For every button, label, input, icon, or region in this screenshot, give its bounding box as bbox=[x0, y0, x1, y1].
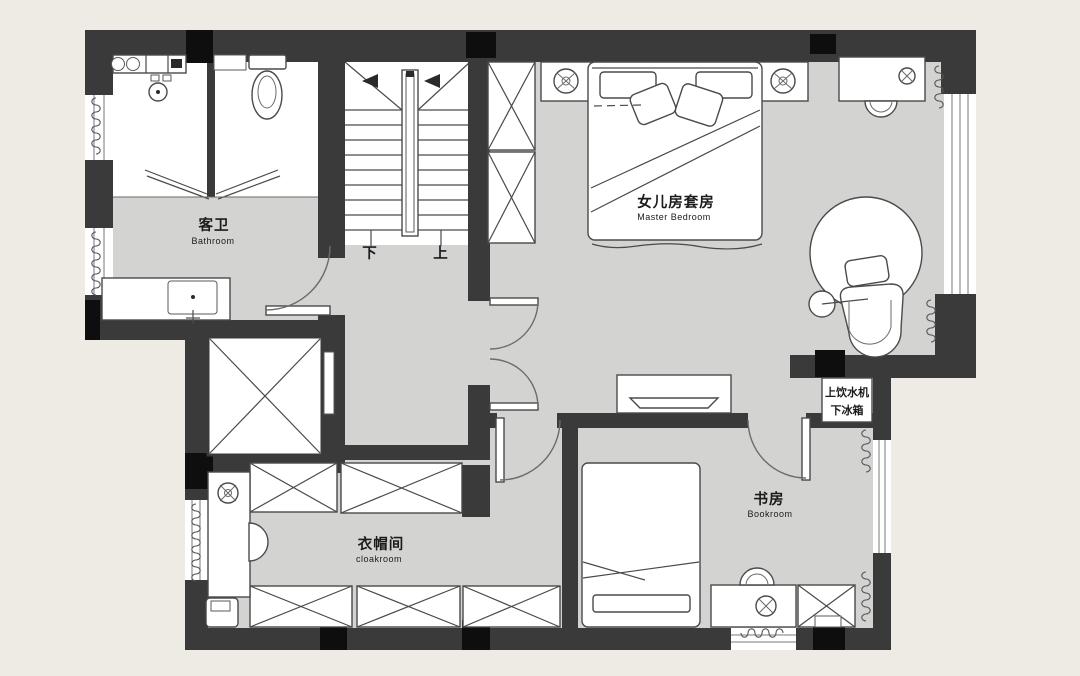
bed-icon bbox=[582, 463, 700, 627]
floor-plan-svg: 上饮水机 下冰箱 bbox=[0, 0, 1080, 676]
wall-cloak-book-divider bbox=[562, 418, 578, 637]
shower-bracket bbox=[163, 75, 171, 81]
outside-notch-right bbox=[891, 378, 1080, 655]
basin-icon bbox=[127, 58, 140, 71]
ottoman bbox=[844, 255, 890, 287]
door-leaf bbox=[802, 418, 810, 480]
wall-master-west-pillar bbox=[468, 385, 490, 460]
master-label-zh: 女儿房套房 bbox=[637, 193, 715, 211]
door-leaf bbox=[490, 403, 538, 410]
outside-notch-left bbox=[85, 337, 185, 657]
wall-corner-e-mid bbox=[935, 294, 976, 358]
wardrobe-x-icon bbox=[250, 463, 337, 512]
wall-divider-seg2 bbox=[557, 413, 748, 428]
wall-master-west bbox=[468, 30, 490, 301]
wall-corner-ne bbox=[941, 30, 976, 94]
master-label-en: Master Bedroom bbox=[637, 212, 711, 222]
wardrobe-x-icon bbox=[357, 586, 460, 627]
wall-bookroom-east-upper bbox=[873, 378, 891, 440]
bathroom-wet-zone bbox=[113, 55, 318, 197]
door-leaf bbox=[266, 306, 330, 315]
window-icon bbox=[873, 440, 891, 553]
wall-hall-south bbox=[330, 445, 490, 460]
pillar bbox=[466, 32, 496, 58]
door-leaf bbox=[496, 418, 504, 482]
shower-bracket bbox=[151, 75, 159, 81]
wall-cloakroom-stub bbox=[462, 465, 490, 517]
bookroom-label-zh: 书房 bbox=[754, 490, 785, 508]
note-water-dispenser: 上饮水机 bbox=[825, 385, 869, 399]
wardrobe-x-icon bbox=[250, 586, 352, 627]
elevator bbox=[208, 337, 334, 455]
stair-rail-cap bbox=[406, 71, 414, 77]
wardrobe-x-icon bbox=[341, 463, 462, 513]
stair-down-label: 下 bbox=[362, 245, 378, 262]
wardrobe-x-icon bbox=[488, 62, 535, 150]
window-icon bbox=[85, 95, 113, 160]
shelf bbox=[214, 55, 246, 70]
basin-icon bbox=[112, 58, 125, 71]
stair-rail-inner bbox=[406, 74, 414, 232]
bathroom-label-zh: 客卫 bbox=[198, 216, 230, 234]
bookroom-label-en: Bookroom bbox=[747, 509, 792, 519]
pillow-icon bbox=[593, 595, 690, 612]
note-fridge: 下冰箱 bbox=[831, 403, 864, 417]
outside-right bbox=[976, 30, 1080, 390]
wardrobe-x-icon bbox=[463, 586, 560, 627]
tv-icon bbox=[630, 398, 718, 408]
wardrobe-x-icon bbox=[798, 585, 855, 627]
cloakroom-label-en: cloakroom bbox=[356, 554, 402, 564]
pillar bbox=[810, 34, 836, 54]
laundry-basket-icon bbox=[206, 598, 238, 627]
toilet-tank bbox=[249, 55, 286, 69]
window-icon bbox=[731, 628, 796, 650]
toilet-icon bbox=[252, 71, 282, 119]
faucet-icon bbox=[171, 59, 182, 68]
wall-elevator-west bbox=[185, 337, 208, 459]
cloakroom-label-zh: 衣帽间 bbox=[358, 535, 405, 553]
wall-bathroom-east-upper bbox=[318, 30, 345, 258]
elevator-door-panel bbox=[324, 352, 334, 414]
pillar bbox=[85, 300, 100, 340]
appliance-note: 上饮水机 下冰箱 bbox=[822, 378, 872, 422]
door-leaf bbox=[490, 298, 538, 305]
desk-icon bbox=[711, 585, 796, 627]
floor-plan-canvas: 上饮水机 下冰箱 bbox=[0, 0, 1080, 676]
window-icon bbox=[185, 500, 208, 580]
bathroom-label-en: Bathroom bbox=[191, 236, 234, 246]
pillar bbox=[815, 350, 845, 377]
pillar bbox=[186, 30, 213, 63]
wall-bathroom-stall-divider bbox=[207, 62, 215, 197]
stair-up-label: 上 bbox=[433, 245, 449, 262]
wardrobe-x-icon bbox=[488, 152, 535, 243]
